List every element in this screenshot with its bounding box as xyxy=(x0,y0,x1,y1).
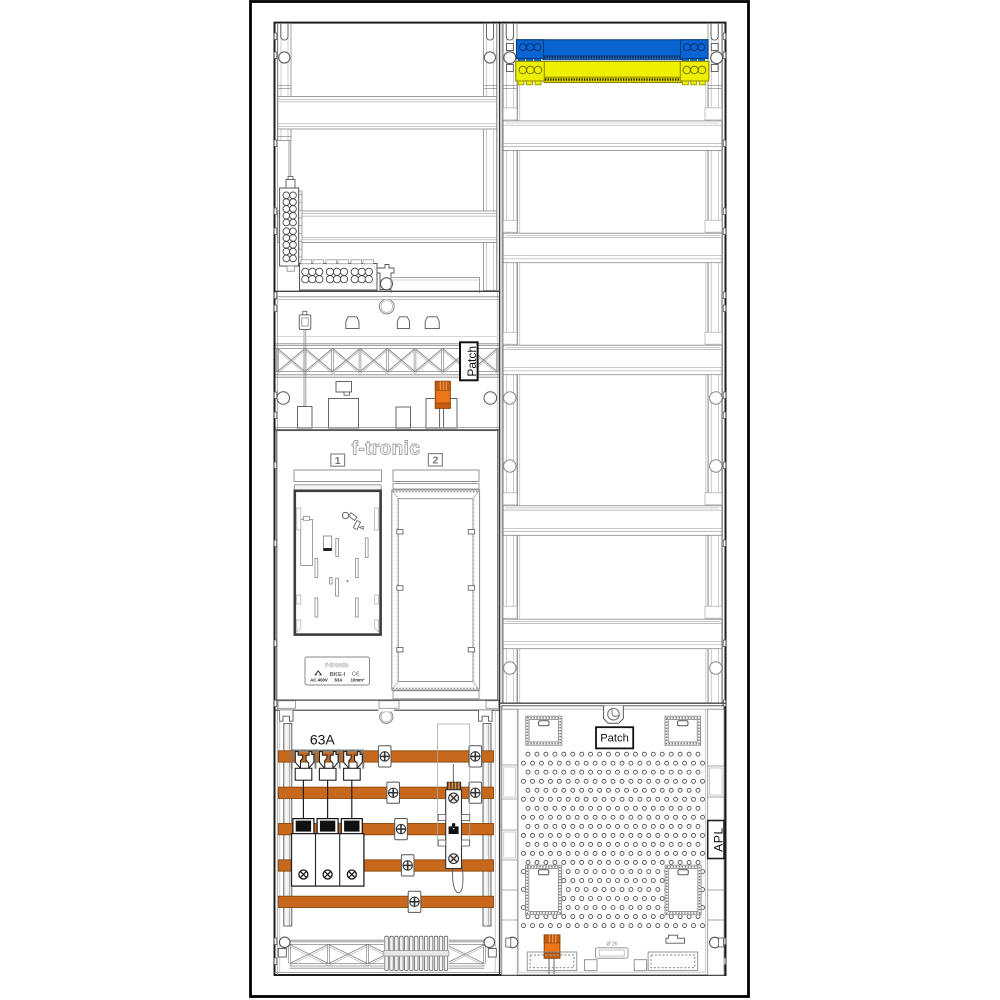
svg-text:f-tronic: f-tronic xyxy=(352,439,421,460)
svg-text:63A: 63A xyxy=(335,678,343,683)
svg-text:1: 1 xyxy=(335,455,341,467)
svg-text:f-tronic: f-tronic xyxy=(325,662,349,669)
svg-text:Patch: Patch xyxy=(600,733,629,745)
svg-text:2: 2 xyxy=(432,455,438,467)
svg-text:APL: APL xyxy=(712,827,726,852)
svg-text:AC 400V: AC 400V xyxy=(310,678,328,683)
svg-text:Ø 26: Ø 26 xyxy=(607,942,618,948)
svg-text:Patch: Patch xyxy=(465,346,479,377)
svg-text:C€: C€ xyxy=(352,672,359,678)
svg-text:63A: 63A xyxy=(310,732,336,748)
svg-text:10mm²: 10mm² xyxy=(351,678,365,683)
